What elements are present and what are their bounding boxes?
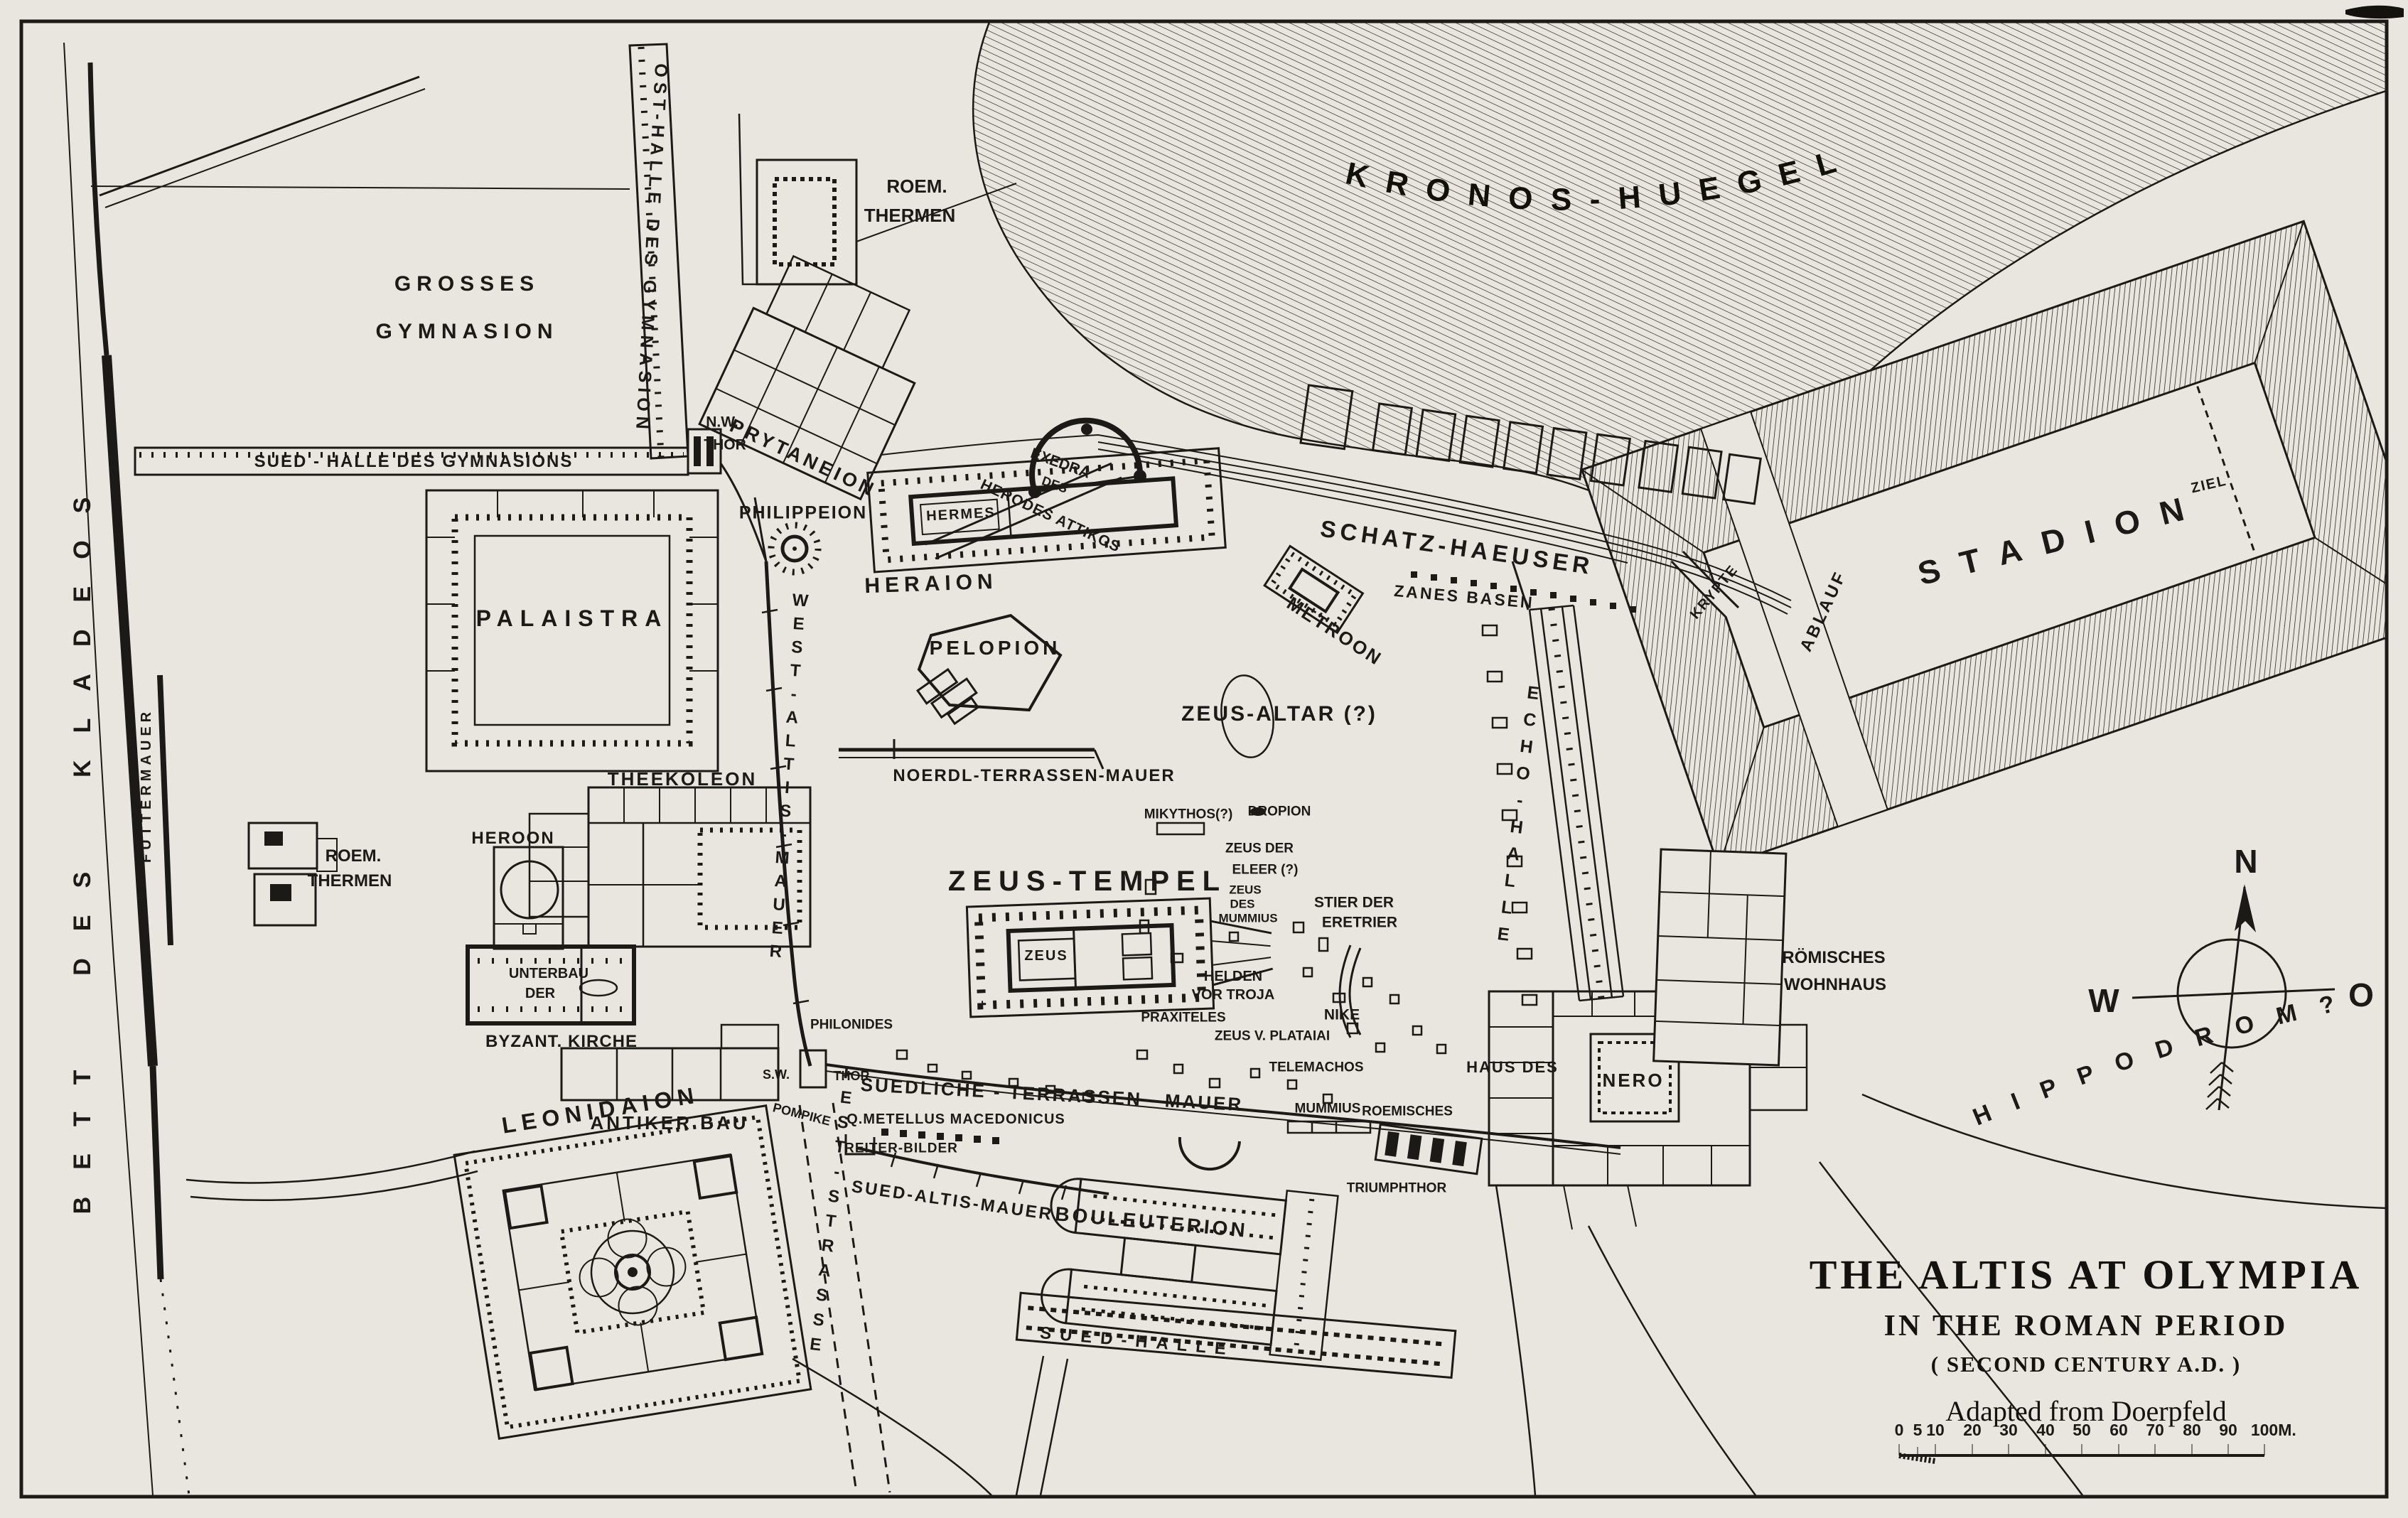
scale-mark-20: 20: [1963, 1421, 1982, 1440]
scale-mark-50: 50: [2073, 1421, 2091, 1440]
scale-mark-60: 60: [2109, 1421, 2128, 1440]
roemisches-wohnhaus-building: [1654, 849, 1786, 1065]
scale-unit: M.: [2278, 1421, 2296, 1440]
scale-mark-10: 10: [1926, 1421, 1945, 1440]
compass-north-label: N: [2234, 842, 2257, 881]
scale-mark-5: 5: [1913, 1421, 1923, 1440]
compass-west-label: W: [2088, 981, 2119, 1020]
map-subtitle-century: ( SECOND CENTURY A.D. ): [1931, 1352, 2241, 1377]
map-page: KRONOS-HUEGEL H I P P O D R O M ? GROSSE…: [0, 0, 2408, 1518]
scale-mark-80: 80: [2183, 1421, 2201, 1440]
scale-mark-30: 30: [1999, 1421, 2018, 1440]
scale-mark-100: 100: [2251, 1421, 2278, 1440]
scale-mark-90: 90: [2219, 1421, 2237, 1440]
compass-east-label: O: [2348, 976, 2374, 1014]
map-title: THE ALTIS AT OLYMPIA: [1810, 1251, 2363, 1298]
scale-mark-40: 40: [2036, 1421, 2055, 1440]
scale-mark-0: 0: [1895, 1421, 1904, 1440]
map-subtitle-period: IN THE ROMAN PERIOD: [1884, 1309, 2289, 1343]
scale-mark-70: 70: [2146, 1421, 2164, 1440]
